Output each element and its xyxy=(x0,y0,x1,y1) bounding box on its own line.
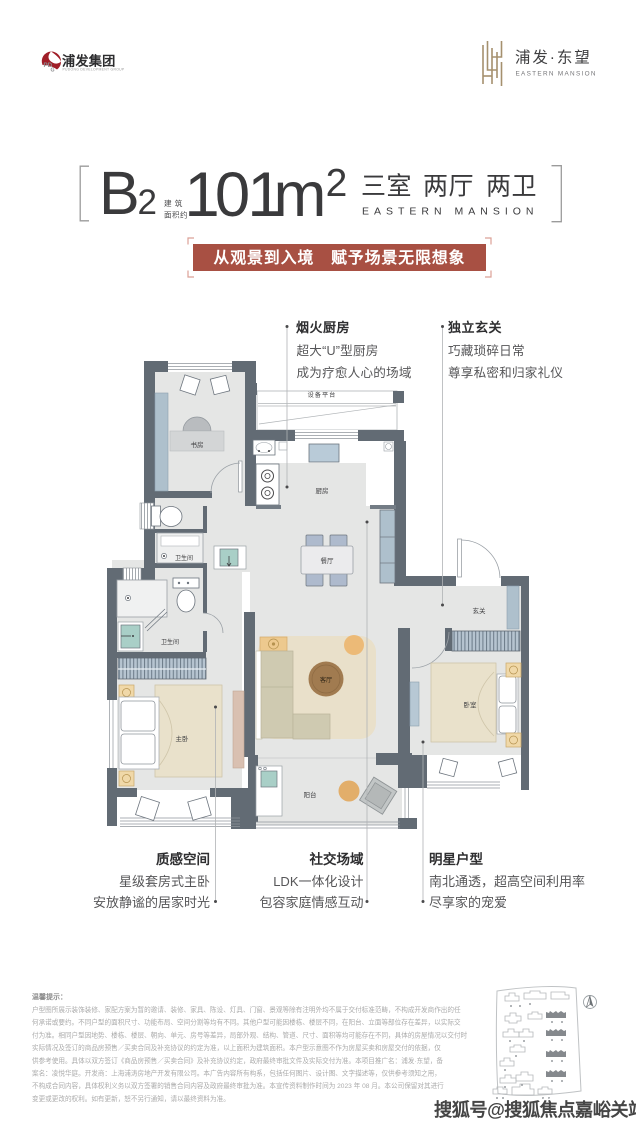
svg-text:G: G xyxy=(51,68,55,74)
svg-text:书房: 书房 xyxy=(191,440,204,449)
svg-text:南北通透，超高空间利用率: 南北通透，超高空间利用率 xyxy=(429,874,585,889)
svg-text:尽享家的宠爱: 尽享家的宠爱 xyxy=(429,895,507,910)
svg-text:社交场域: 社交场域 xyxy=(309,851,364,867)
svg-text:建筑: 建筑 xyxy=(164,198,186,208)
svg-text:m: m xyxy=(274,160,327,230)
svg-text:安放静谧的居家时光: 安放静谧的居家时光 xyxy=(93,895,210,910)
svg-text:两厅: 两厅 xyxy=(423,173,474,201)
svg-text:户型图所展示装饰装修、家配方案为暂的邀请、装修、家具、陈设、: 户型图所展示装饰装修、家配方案为暂的邀请、装修、家具、陈设、灯具、门窗、景观等除… xyxy=(32,1005,461,1014)
svg-text:EASTERN MANSION: EASTERN MANSION xyxy=(362,206,539,218)
svg-text:巧藏琐碎日常: 巧藏琐碎日常 xyxy=(448,343,525,358)
svg-text:设备平台: 设备平台 xyxy=(308,391,337,399)
svg-text:何承诺或要约。不同户型的面积尺寸、功能布局、空间分割等均有不: 何承诺或要约。不同户型的面积尺寸、功能布局、空间分割等均有不同。其他户型可能因楼… xyxy=(32,1018,461,1027)
svg-text:玄关: 玄关 xyxy=(473,606,487,615)
svg-text:阳台: 阳台 xyxy=(304,790,317,799)
svg-text:EASTERN MANSION: EASTERN MANSION xyxy=(516,71,597,78)
svg-text:卧室: 卧室 xyxy=(464,700,478,709)
svg-text:餐厅: 餐厅 xyxy=(321,556,335,565)
svg-text:2: 2 xyxy=(138,183,157,222)
svg-text:搜狐号@搜狐焦点嘉峪关站: 搜狐号@搜狐焦点嘉峪关站 xyxy=(434,1099,636,1120)
svg-text:独立玄关: 独立玄关 xyxy=(448,320,502,335)
svg-text:包容家庭情感互动: 包容家庭情感互动 xyxy=(259,895,363,910)
svg-text:成为疗愈人心的场域: 成为疗愈人心的场域 xyxy=(297,365,412,380)
svg-text:付为准。相同户型因地势、楼栋、楼层、朝向、单元、房号等差异，: 付为准。相同户型因地势、楼栋、楼层、朝向、单元、房号等差异，局部外观、结构、管道… xyxy=(32,1030,468,1039)
svg-text:尊享私密和归家礼仪: 尊享私密和归家礼仪 xyxy=(448,365,563,380)
svg-text:LDK一体化设计: LDK一体化设计 xyxy=(273,874,363,889)
svg-text:0: 0 xyxy=(215,160,250,230)
svg-text:不构成合同内容，具体权利义务以双方签署的销售合同内容及政府最: 不构成合同内容，具体权利义务以双方签署的销售合同内容及政府最终审批为准。本宣传资… xyxy=(32,1081,444,1090)
svg-text:厨房: 厨房 xyxy=(316,486,329,495)
svg-text:星级套房式主卧: 星级套房式主卧 xyxy=(119,874,210,889)
svg-text:卫生间: 卫生间 xyxy=(175,554,193,562)
svg-text:烟火厨房: 烟火厨房 xyxy=(296,320,350,335)
svg-text:浦发·东望: 浦发·东望 xyxy=(515,49,592,67)
svg-text:从观景到入境 赋予场景无限想象: 从观景到入境 赋予场景无限想象 xyxy=(214,248,466,267)
svg-text:质感空间: 质感空间 xyxy=(156,851,210,867)
svg-text:实际情况及签订的商品房预售／买卖合同及补充协议的约定为准，以: 实际情况及签订的商品房预售／买卖合同及补充协议的约定为准，以上面积为建筑面积。本… xyxy=(32,1043,441,1052)
svg-text:三室: 三室 xyxy=(361,173,412,201)
svg-text:卫生间: 卫生间 xyxy=(161,638,179,646)
svg-text:浦发集团: 浦发集团 xyxy=(62,53,116,69)
svg-text:供参考使用。具体以双方签订《商品房预售／买卖合同》及补充协议: 供参考使用。具体以双方签订《商品房预售／买卖合同》及补充协议约定，政府最终审批文… xyxy=(32,1056,443,1065)
svg-text:变更或更改的权利。如有更新，恕不另行通知，请以最终资料为准。: 变更或更改的权利。如有更新，恕不另行通知，请以最终资料为准。 xyxy=(32,1094,230,1103)
svg-text:2: 2 xyxy=(326,162,348,205)
svg-text:超大“U”型厨房: 超大“U”型厨房 xyxy=(297,343,379,358)
svg-text:两卫: 两卫 xyxy=(486,173,537,201)
svg-text:B: B xyxy=(99,159,140,227)
svg-text:PUDONG DEVELOPMENT GROUP: PUDONG DEVELOPMENT GROUP xyxy=(63,68,125,72)
svg-text:明星户型: 明星户型 xyxy=(429,851,483,867)
svg-text:客厅: 客厅 xyxy=(320,676,332,684)
svg-text:温馨提示：: 温馨提示： xyxy=(32,992,67,1001)
svg-text:主卧: 主卧 xyxy=(176,734,190,743)
svg-text:案名：凌悦华庭。开发商：上海浦涛房地产开发有限公司。本广告内: 案名：凌悦华庭。开发商：上海浦涛房地产开发有限公司。本广告内容所有构系，包括任何… xyxy=(32,1069,441,1078)
